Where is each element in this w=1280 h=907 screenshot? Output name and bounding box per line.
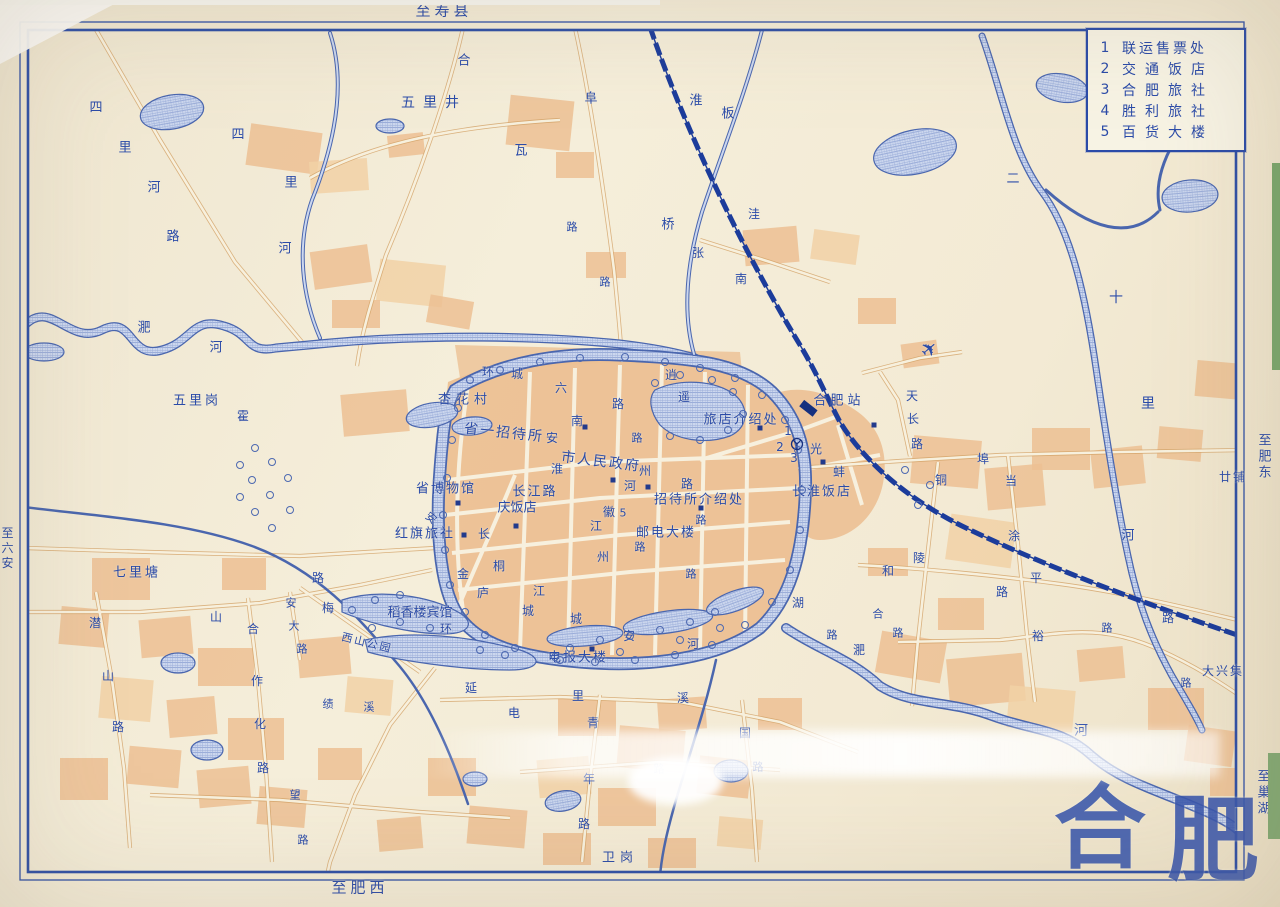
legend-item-label: 百货大楼: [1122, 122, 1214, 142]
photo-right-edge-background: [1268, 753, 1280, 839]
map-content: [16, 27, 1248, 880]
photo-top-edge: [0, 0, 660, 5]
legend-item-number: 1: [1096, 40, 1114, 56]
map-photo: 至寿县至肥西至肥东至巢湖至六安五里井合阜瓦淮板桥张洼路路二十里河廿铺四里河路四里…: [0, 0, 1280, 907]
legend-item-number: 2: [1096, 61, 1114, 77]
legend-item: 5百货大楼: [1096, 122, 1236, 143]
legend-item: 2交通饭店: [1096, 59, 1236, 80]
urban-blocks: [58, 95, 1248, 868]
legend-rows: 1联运售票处2交通饭店3合肥旅社4胜利旅社5百货大楼: [1096, 38, 1236, 143]
legend-item: 3合肥旅社: [1096, 80, 1236, 101]
legend-item: 1联运售票处: [1096, 38, 1236, 59]
photo-right-edge-background: [1272, 163, 1280, 370]
legend-item: 4胜利旅社: [1096, 101, 1236, 122]
legend-item-label: 交通饭店: [1122, 59, 1214, 79]
legend-item-number: 3: [1096, 82, 1114, 98]
legend-item-number: 5: [1096, 124, 1114, 140]
legend-box: 1联运售票处2交通饭店3合肥旅社4胜利旅社5百货大楼: [1086, 28, 1246, 152]
legend-item-number: 4: [1096, 103, 1114, 119]
legend-item-label: 合肥旅社: [1122, 80, 1214, 100]
legend-item-label: 联运售票处: [1122, 38, 1207, 58]
legend-item-label: 胜利旅社: [1122, 101, 1214, 121]
